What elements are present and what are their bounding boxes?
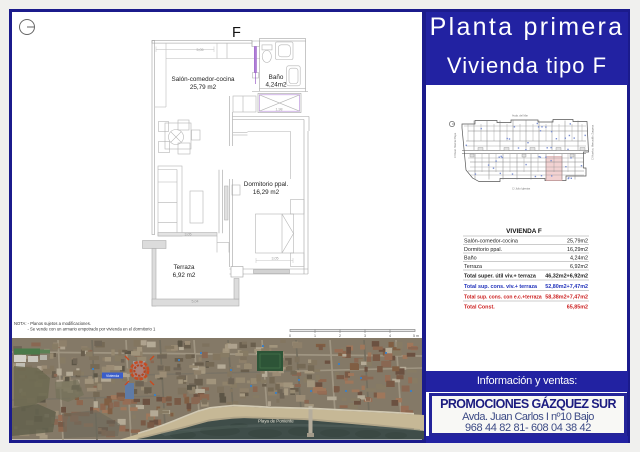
svg-text:4,24m2: 4,24m2 bbox=[570, 256, 588, 262]
svg-text:4: 4 bbox=[389, 334, 391, 338]
svg-text:6,92 m2: 6,92 m2 bbox=[173, 272, 196, 279]
svg-text:Terraza: Terraza bbox=[174, 264, 195, 271]
svg-text:3: 3 bbox=[364, 334, 366, 338]
svg-text:- Se vende con un armario empo: - Se vende con un armario empotrado por … bbox=[28, 327, 156, 332]
svg-text:C/ Julio Iglesias: C/ Julio Iglesias bbox=[512, 187, 531, 191]
svg-text:3,05: 3,05 bbox=[185, 233, 192, 237]
svg-text:3,05: 3,05 bbox=[272, 257, 279, 261]
svg-text:16,29 m2: 16,29 m2 bbox=[253, 189, 280, 196]
svg-text:Terraza: Terraza bbox=[464, 264, 482, 270]
svg-text:1,98: 1,98 bbox=[276, 108, 283, 112]
svg-text:Total sup. cons. con e.c.+terr: Total sup. cons. con e.c.+terraza bbox=[464, 295, 542, 301]
svg-text:52,80m2+7,47m2: 52,80m2+7,47m2 bbox=[545, 284, 588, 290]
svg-text:1: 1 bbox=[314, 334, 316, 338]
svg-text:Total super. útil viv.+ terraz: Total super. útil viv.+ terraza bbox=[464, 274, 537, 280]
svg-text:16,29m2: 16,29m2 bbox=[567, 247, 588, 253]
svg-text:46,32m2+6,92m2: 46,32m2+6,92m2 bbox=[545, 274, 588, 280]
svg-text:Dormitorio ppal.: Dormitorio ppal. bbox=[464, 247, 502, 253]
svg-text:Playa de Poniente: Playa de Poniente bbox=[258, 419, 294, 424]
svg-text:VIVIENDA F: VIVIENDA F bbox=[506, 228, 542, 235]
svg-text:NOTA: - Planos sujetos a modi: NOTA: - Planos sujetos a modificaciones. bbox=[14, 321, 91, 326]
svg-text:Vivienda: Vivienda bbox=[106, 374, 119, 378]
svg-text:Avda. del Mar: Avda. del Mar bbox=[512, 114, 528, 118]
svg-text:Baño: Baño bbox=[464, 256, 477, 262]
svg-text:5,05: 5,05 bbox=[197, 48, 204, 52]
svg-text:F: F bbox=[232, 25, 241, 41]
svg-text:Total Const.: Total Const. bbox=[464, 305, 495, 311]
svg-text:58,38m2+7,47m2: 58,38m2+7,47m2 bbox=[545, 295, 588, 301]
svg-text:25,79m2: 25,79m2 bbox=[567, 239, 588, 245]
svg-text:2: 2 bbox=[339, 334, 341, 338]
svg-text:0: 0 bbox=[289, 334, 291, 338]
svg-text:5,04: 5,04 bbox=[192, 300, 199, 304]
svg-text:Salón-comedor-cocina: Salón-comedor-cocina bbox=[464, 239, 518, 245]
svg-text:25,79 m2: 25,79 m2 bbox=[190, 84, 217, 91]
svg-text:Baño: Baño bbox=[269, 74, 284, 81]
svg-text:Dormitorio ppal.: Dormitorio ppal. bbox=[244, 181, 289, 188]
svg-text:6,92m2: 6,92m2 bbox=[570, 264, 588, 270]
svg-text:65,85m2: 65,85m2 bbox=[567, 305, 588, 311]
svg-text:5 m: 5 m bbox=[413, 334, 419, 338]
svg-text:Total sup. cons. viv.+ terraza: Total sup. cons. viv.+ terraza bbox=[464, 284, 538, 290]
svg-text:C/ Real. Murcia Playa: C/ Real. Murcia Playa bbox=[453, 132, 457, 158]
svg-text:4,24m2: 4,24m2 bbox=[265, 82, 287, 89]
svg-text:Salón-comedor-cocina: Salón-comedor-cocina bbox=[172, 76, 235, 83]
svg-text:C/ Huelva. Mercadillo Zurgena: C/ Huelva. Mercadillo Zurgena bbox=[591, 124, 595, 160]
